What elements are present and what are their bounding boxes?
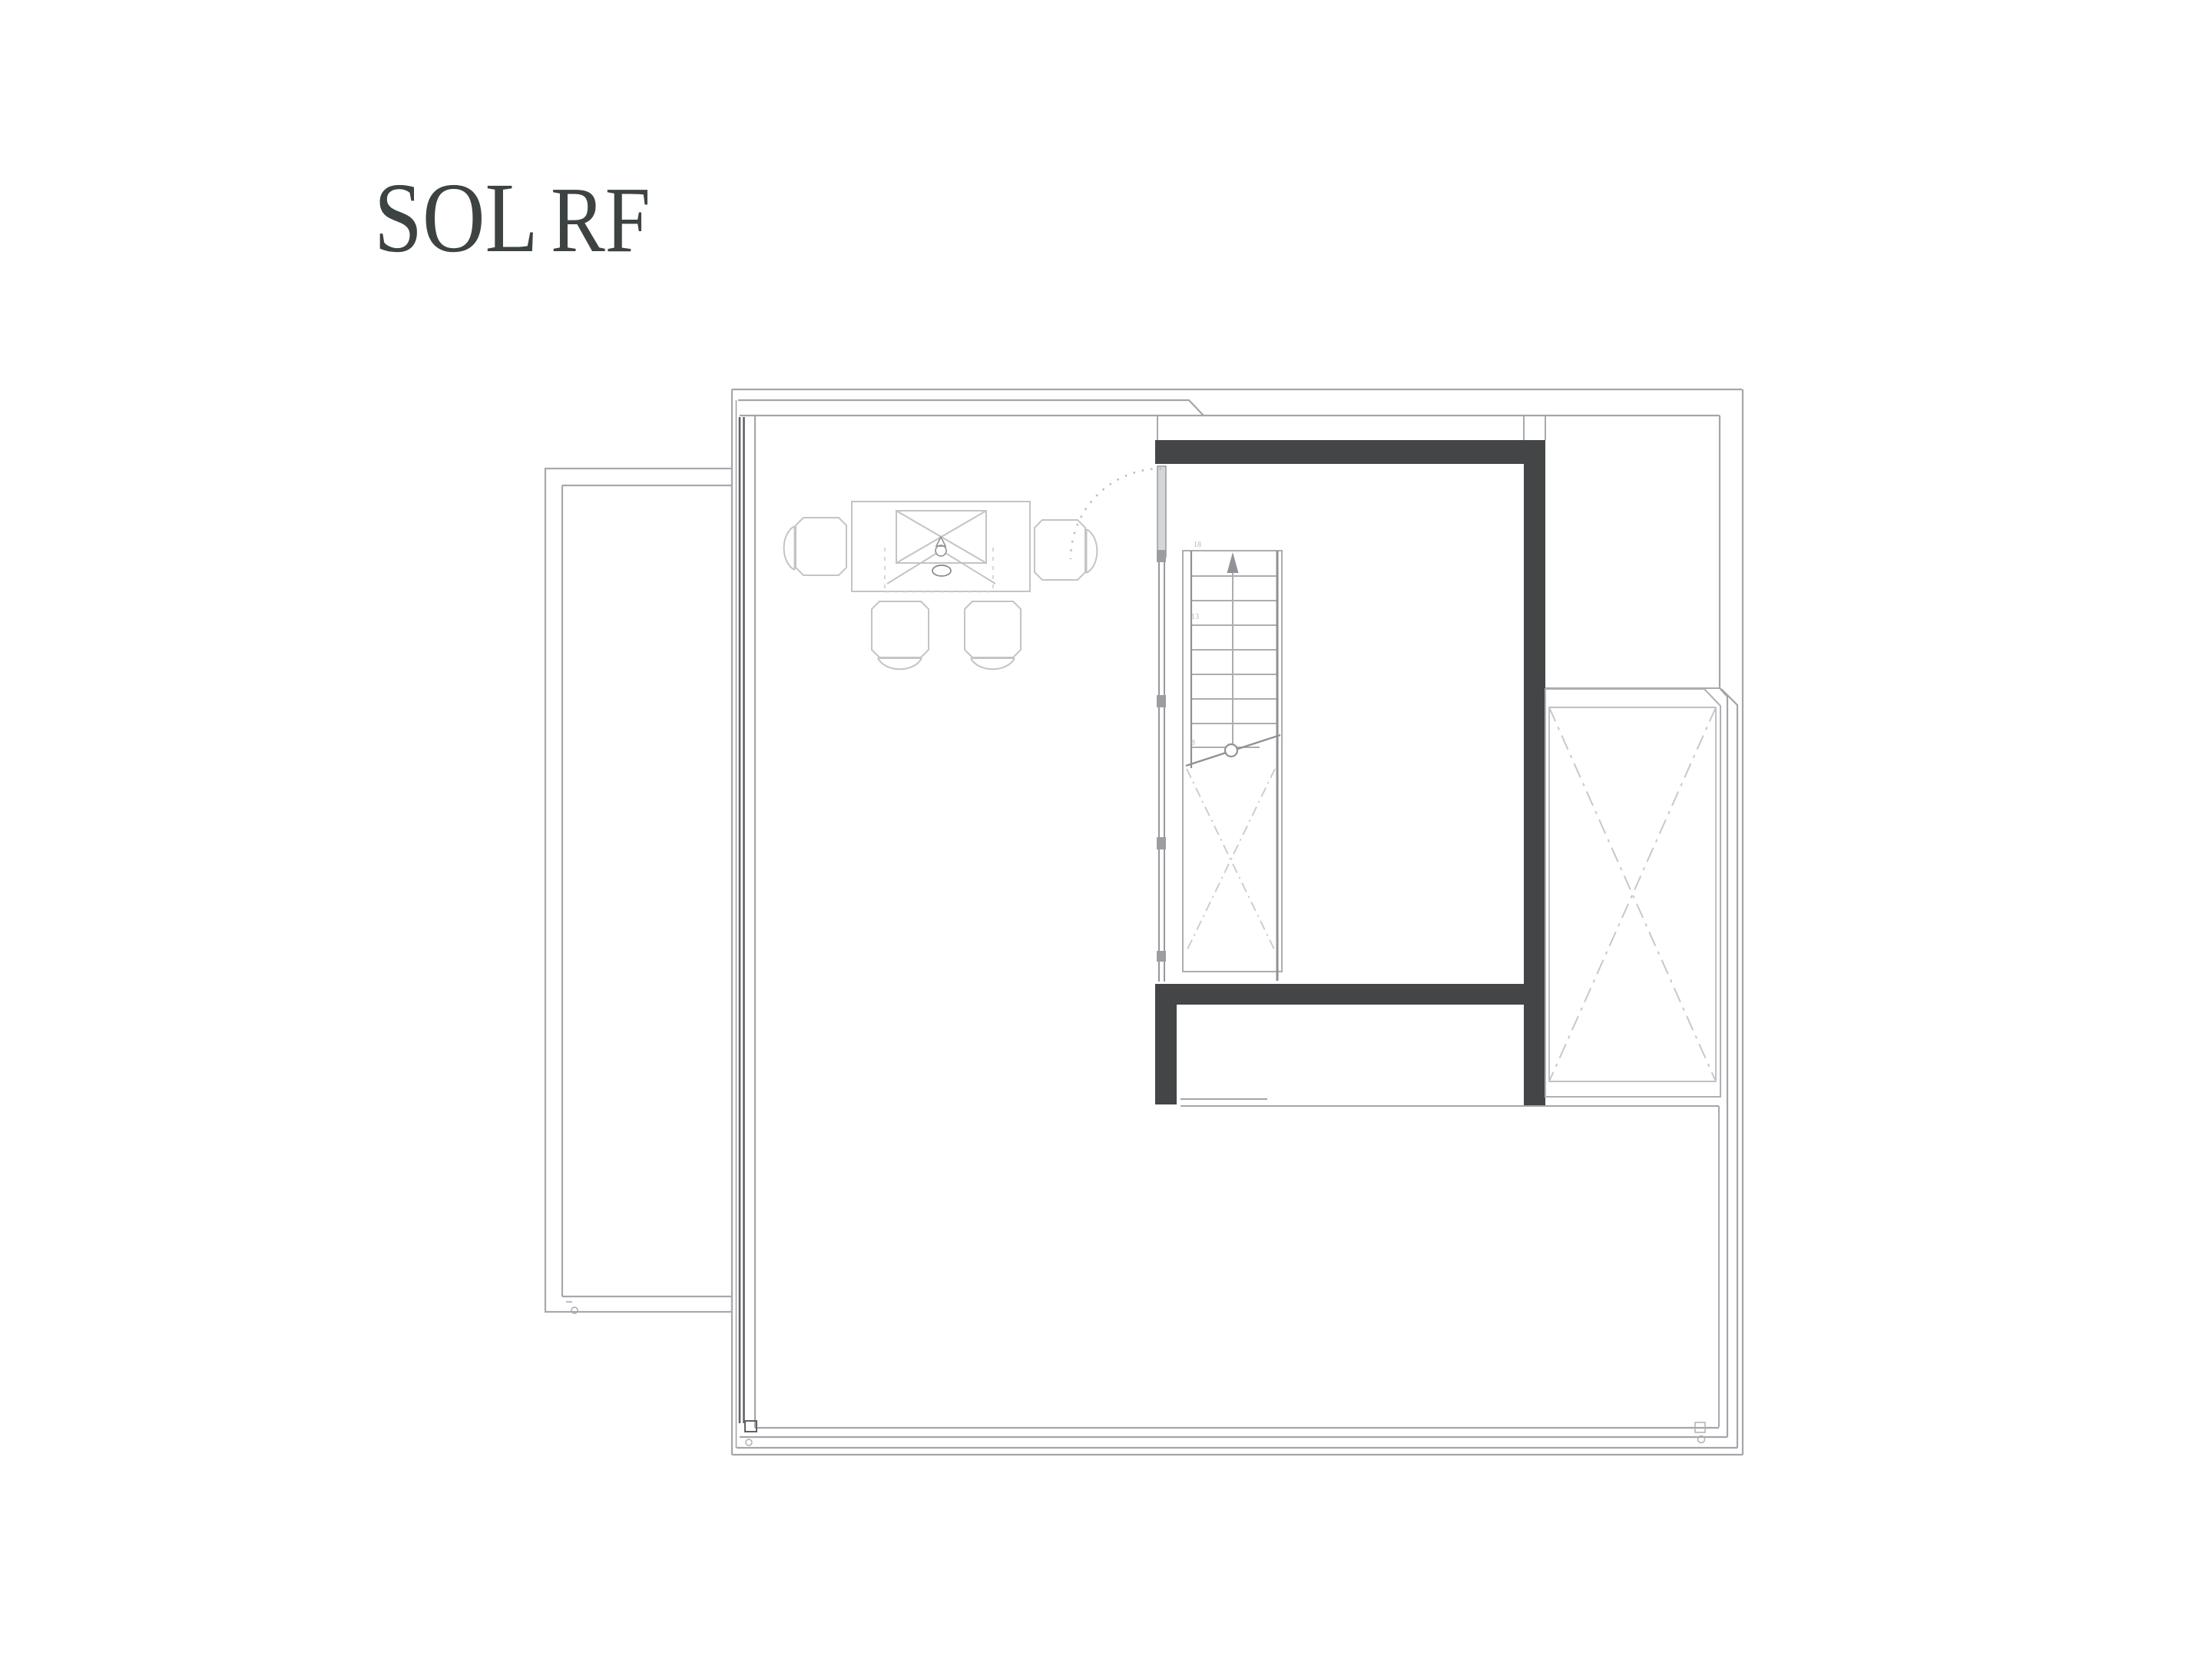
svg-text:18: 18 [1194,541,1201,549]
svg-text:RF: RF [551,167,651,272]
svg-text:13: 13 [1191,613,1199,621]
svg-text:SOL: SOL [374,163,538,273]
svg-text:8: 8 [1191,739,1195,747]
